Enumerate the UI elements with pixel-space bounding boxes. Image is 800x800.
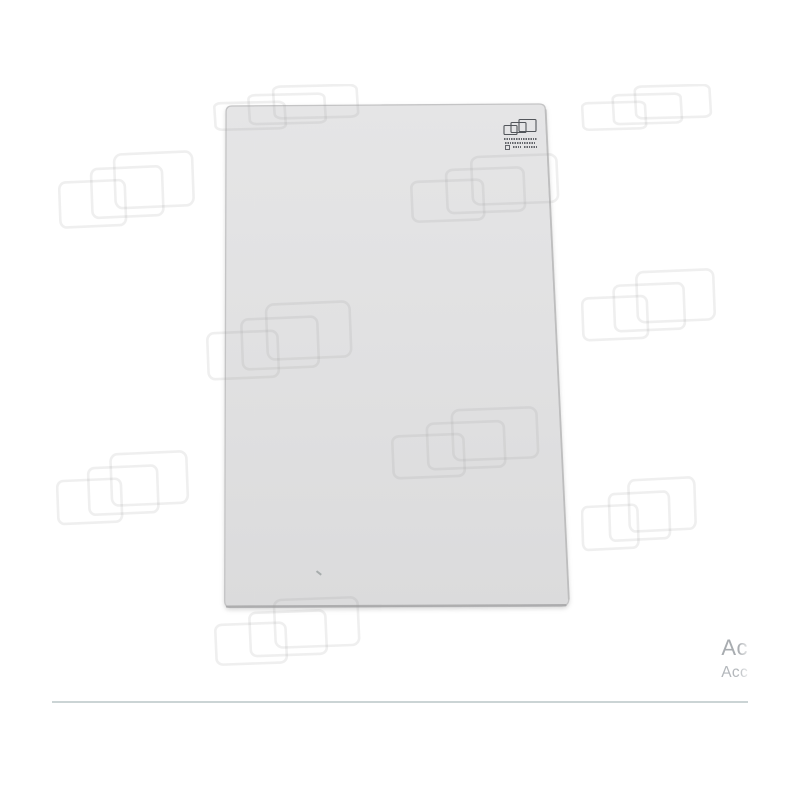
text-fade-overlay	[738, 632, 756, 686]
glass-bottom-edge	[227, 605, 566, 606]
stamp-overlapping-panes-logo-icon	[502, 118, 540, 136]
stamp-microtext-line	[505, 142, 535, 144]
stamp-approval-mark-icon	[505, 145, 510, 150]
stamp-microtext-line	[524, 146, 537, 148]
glass-certification-stamp	[502, 118, 540, 150]
glass-panel-shape	[225, 104, 569, 608]
stamp-microtext-line	[513, 146, 521, 148]
glass-panel-image	[0, 0, 800, 800]
section-divider-line	[52, 701, 748, 703]
stamp-microtext-line	[504, 138, 537, 140]
page: Ac Acc	[0, 0, 800, 800]
